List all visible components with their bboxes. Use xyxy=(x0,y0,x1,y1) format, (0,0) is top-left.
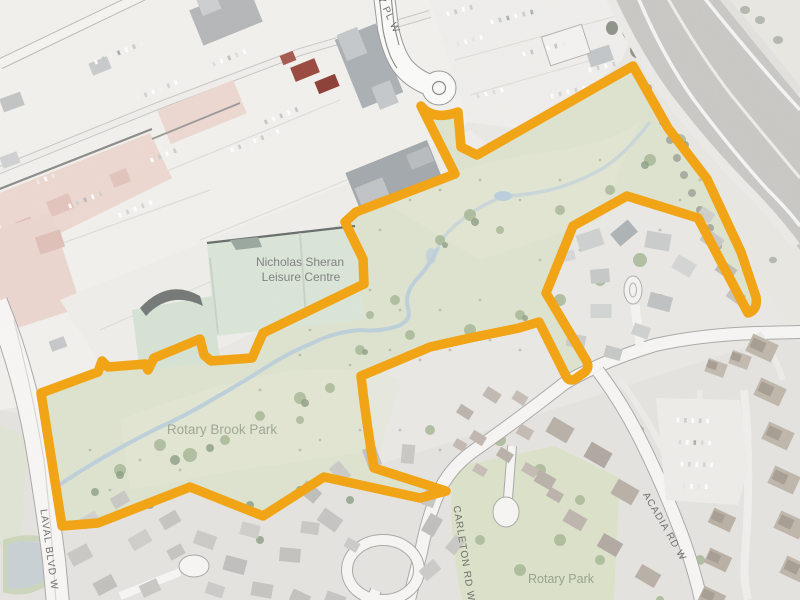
svg-text:Nicholas Sheran: Nicholas Sheran xyxy=(256,255,344,269)
svg-text:Leisure Centre: Leisure Centre xyxy=(262,270,341,284)
svg-text:Rotary Park: Rotary Park xyxy=(528,572,595,586)
svg-text:Rotary Brook Park: Rotary Brook Park xyxy=(167,422,278,437)
